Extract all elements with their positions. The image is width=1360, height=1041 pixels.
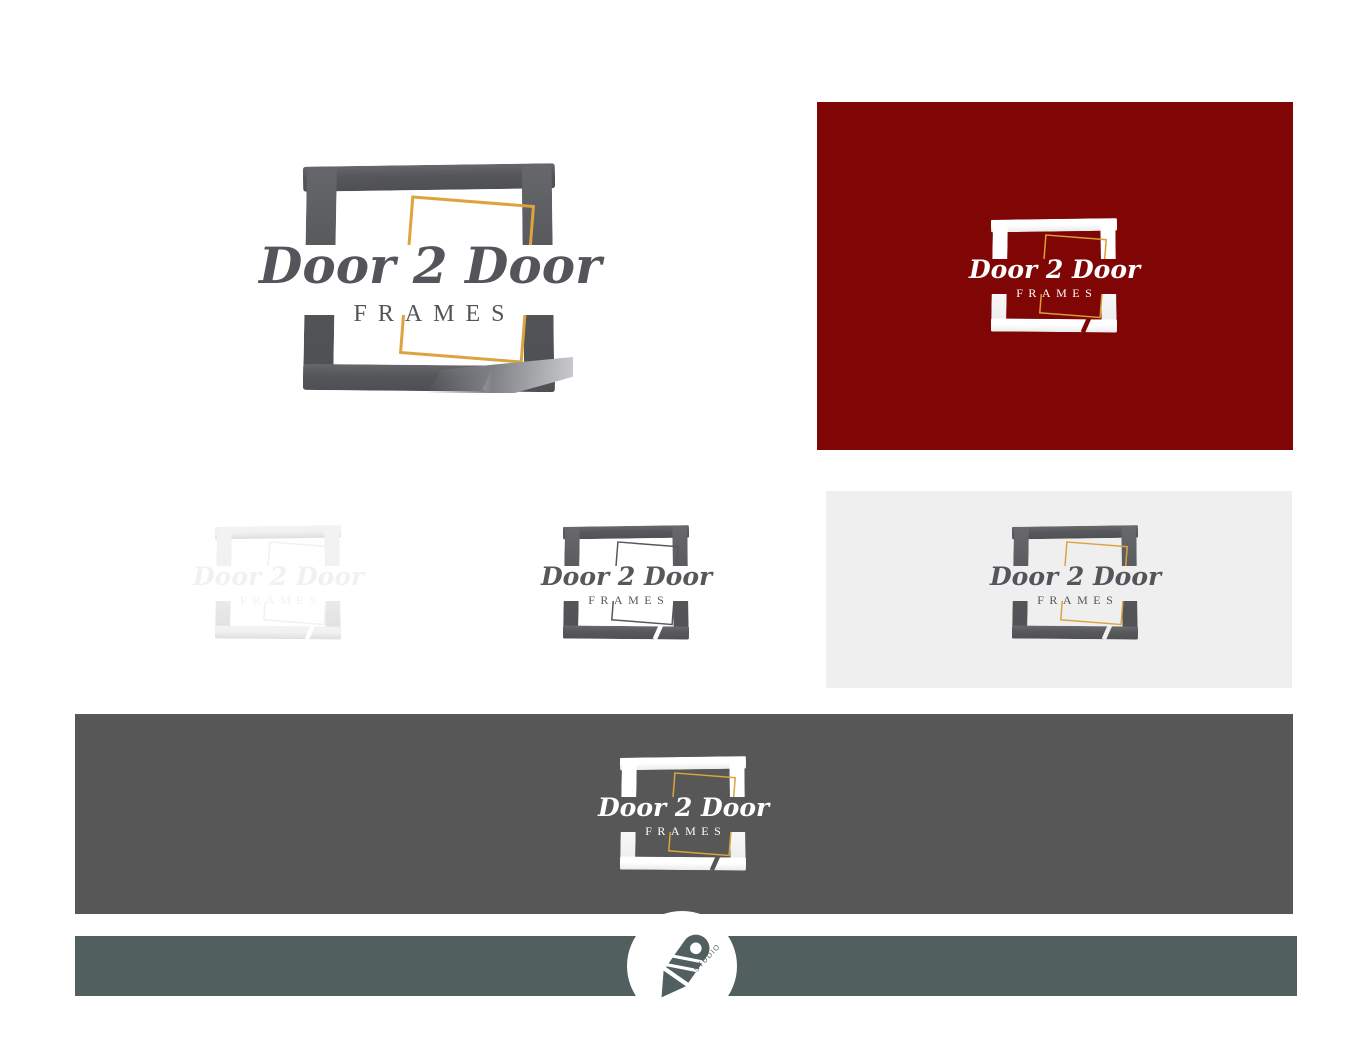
logo-frame-top-stroke <box>1012 525 1138 539</box>
logo-sub-wordmark: FRAMES <box>969 287 1139 301</box>
logo-frame-top-stroke <box>563 525 689 539</box>
logo-script-wordmark: Door 2 Door <box>259 237 599 295</box>
light-gray-background-panel: Door 2 Door FRAMES <box>826 491 1292 688</box>
logo-hero-color-on-white: Door 2 Door FRAMES <box>259 153 599 403</box>
logo-script-wordmark: Door 2 Door <box>990 562 1160 591</box>
logo-frame-top-stroke <box>991 218 1117 232</box>
logo-frame-top-stroke <box>215 525 341 539</box>
designer-studio-badge: STUDIO <box>627 911 737 1021</box>
logo-frame-bottom-stroke <box>620 856 746 870</box>
logo-white-on-dark: Door 2 Door FRAMES <box>598 751 768 876</box>
logo-sub-wordmark: FRAMES <box>259 301 599 328</box>
logo-sub-wordmark: FRAMES <box>598 825 768 839</box>
logo-presentation-sheet: Door 2 Door FRAMES Door 2 Door FRAMES Do… <box>0 0 1360 1041</box>
logo-color-on-light-gray: Door 2 Door FRAMES <box>990 520 1160 645</box>
logo-script-wordmark: Door 2 Door <box>541 562 711 591</box>
logo-script-wordmark: Door 2 Door <box>598 793 768 822</box>
logo-frame-top-stroke <box>303 163 555 192</box>
logo-frame-bottom-stroke <box>991 318 1117 332</box>
logo-sub-wordmark: FRAMES <box>990 594 1160 608</box>
logo-sub-wordmark: FRAMES <box>193 594 363 608</box>
logo-frame-bottom-stroke <box>1012 625 1138 639</box>
logo-frame-bottom-stroke <box>563 625 689 639</box>
dark-gray-banner: Door 2 Door FRAMES <box>75 714 1293 914</box>
logo-frame-top-stroke <box>620 756 746 770</box>
logo-monochrome-gray: Door 2 Door FRAMES <box>541 520 711 645</box>
maroon-background-panel: Door 2 Door FRAMES <box>817 102 1293 450</box>
logo-frame-bottom-stroke <box>215 625 341 639</box>
logo-faint-light-gray: Door 2 Door FRAMES <box>193 520 363 645</box>
logo-white-on-maroon: Door 2 Door FRAMES <box>969 213 1139 338</box>
logo-script-wordmark: Door 2 Door <box>193 562 363 591</box>
logo-sub-wordmark: FRAMES <box>541 594 711 608</box>
pencil-studio-logo: STUDIO <box>640 922 724 1010</box>
logo-script-wordmark: Door 2 Door <box>969 255 1139 284</box>
